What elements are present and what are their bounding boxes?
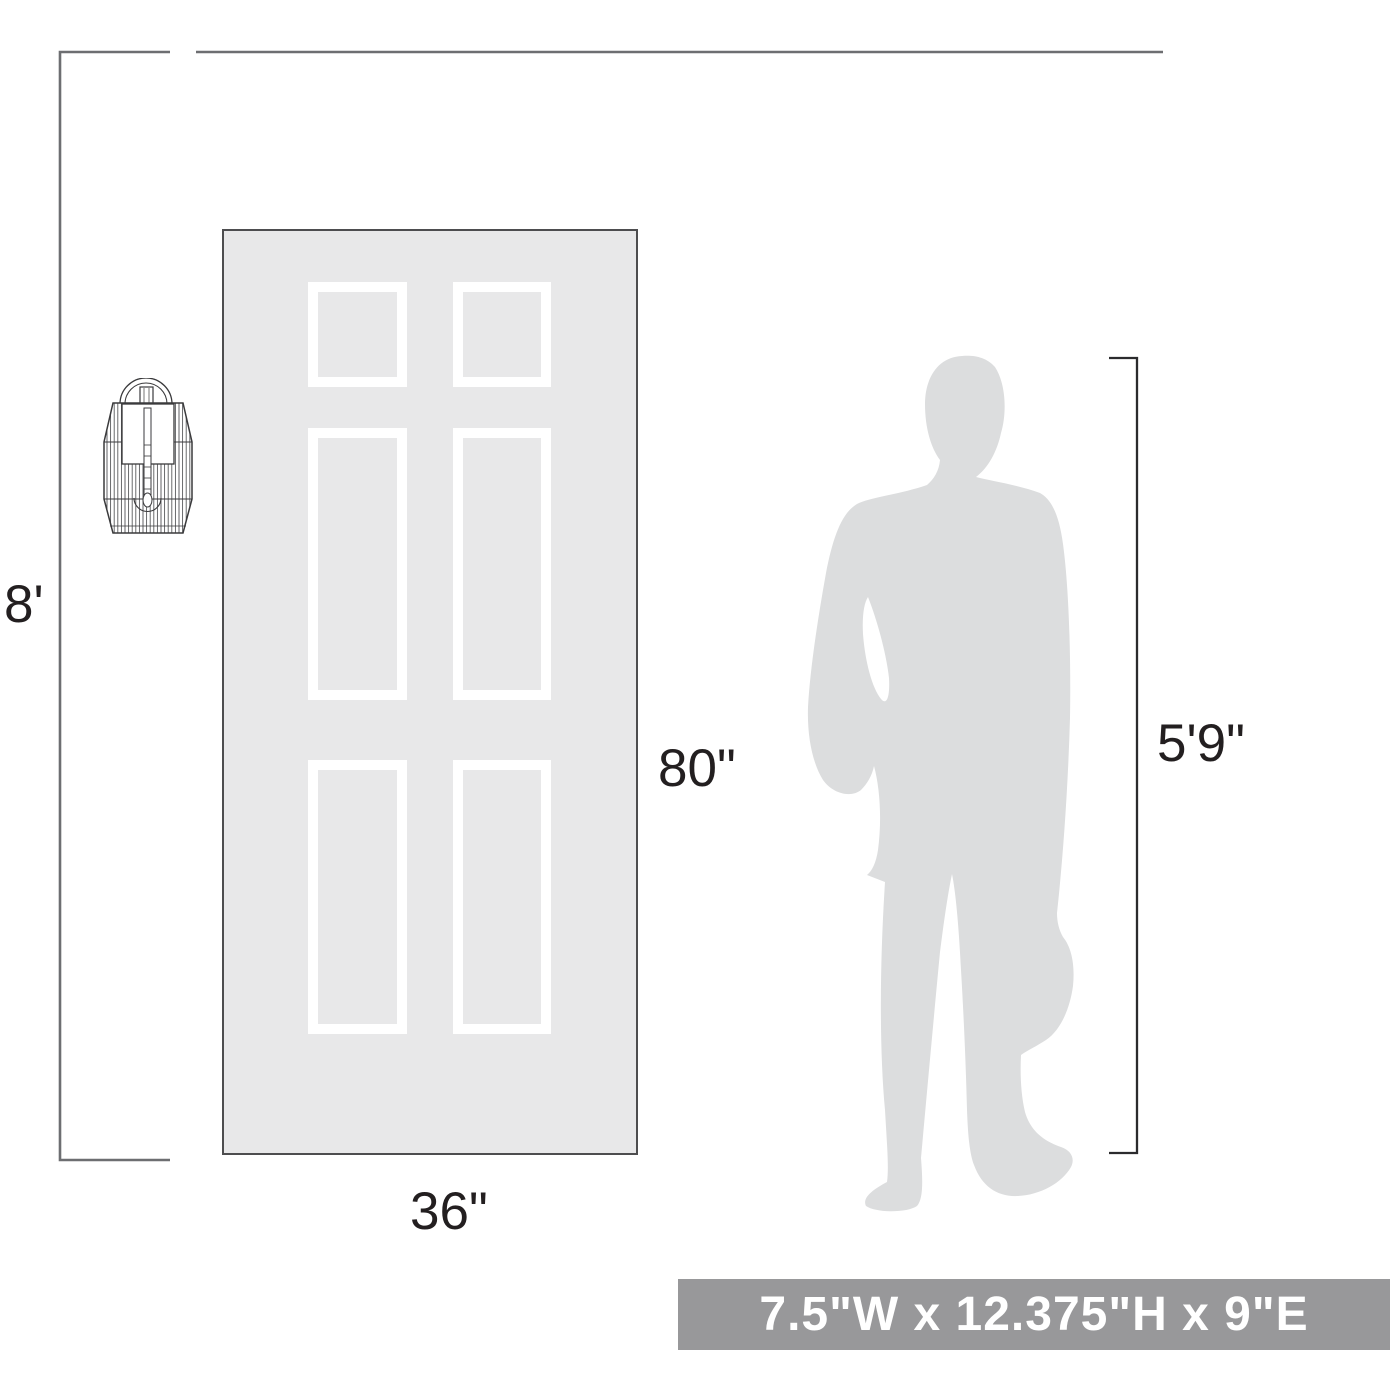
man-body [808, 356, 1074, 1211]
product-scale-diagram: 8' 80" 36" 5'9" 7.5"W x 12.375"H x 9"E [0, 0, 1400, 1400]
door-height-label: 80" [658, 742, 736, 795]
product-dimensions-text: 7.5"W x 12.375"H x 9"E [759, 1287, 1308, 1342]
person-silhouette [0, 0, 1400, 1400]
person-height-label: 5'9" [1157, 717, 1245, 770]
ceiling-height-label: 8' [4, 578, 44, 631]
product-dimensions-banner: 7.5"W x 12.375"H x 9"E [678, 1279, 1390, 1350]
door-width-label: 36" [410, 1185, 488, 1238]
